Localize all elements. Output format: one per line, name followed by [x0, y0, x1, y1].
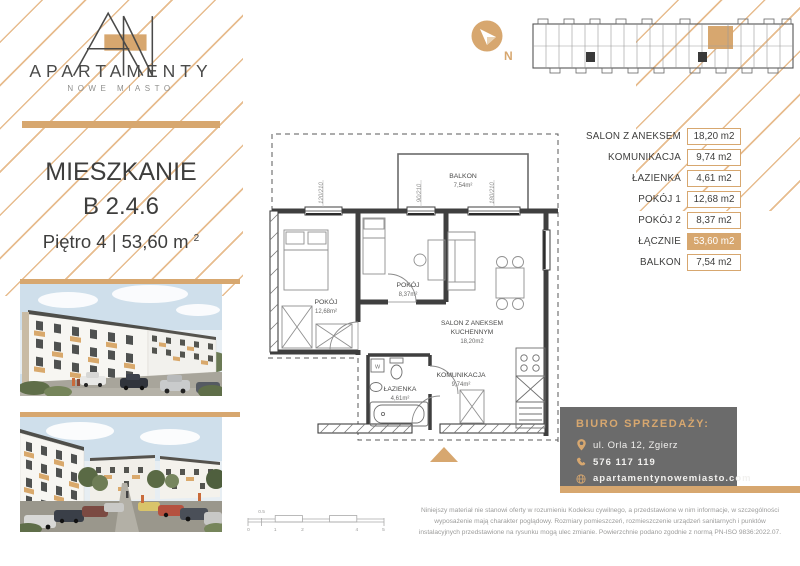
- key-plan-units: [533, 24, 793, 68]
- sales-office-box: BIURO SPRZEDAŻY: ul. Orla 12, Zgierz 576…: [560, 407, 737, 486]
- balkon-label: BALKON: [449, 173, 477, 180]
- office-website-row: apartamentynowemiasto.com: [576, 473, 737, 484]
- pokoj1-furniture: [282, 230, 352, 348]
- salon-furniture: [448, 232, 524, 423]
- listing-title-block: MIESZKANIE B 2.4.6 Piętro 4 | 53,60 m 2: [8, 158, 234, 253]
- row-value: 7,54 m2: [687, 254, 741, 271]
- row-label: SALON Z ANEKSEM: [558, 131, 687, 142]
- table-row: KOMUNIKACJA 9,74 m2: [558, 149, 741, 166]
- komunikacja-label: KOMUNIKACJA: [436, 372, 486, 379]
- window-dim-3: 180/210: [490, 182, 496, 204]
- table-row: POKÓJ 2 8,37 m2: [558, 212, 741, 229]
- listing-type: MIESZKANIE: [8, 158, 234, 187]
- listing-area-sup: 2: [194, 233, 200, 244]
- office-phone-row: 576 117 119: [576, 457, 737, 468]
- office-bottom-bar: [560, 486, 800, 493]
- lazienka-label: ŁAZIENKA: [384, 386, 417, 393]
- disclaimer-line-2: wyposażenie mają charakter poglądowy. Ro…: [412, 516, 788, 527]
- row-value: 8,37 m2: [687, 212, 741, 229]
- kitchen-fixtures: [516, 348, 545, 428]
- row-label: ŁĄCZNIE: [558, 236, 687, 247]
- row-label: POKÓJ 1: [558, 194, 687, 205]
- pokoj1-area: 12,68m²: [315, 309, 337, 315]
- table-row: BALKON 7,54 m2: [558, 254, 741, 271]
- building-render-photo-2: [20, 417, 222, 532]
- table-row: SALON Z ANEKSEM 18,20 m2: [558, 128, 741, 145]
- listing-floor-text: Piętro 4 | 53,60 m: [43, 231, 189, 252]
- office-address: ul. Orla 12, Zgierz: [593, 440, 678, 451]
- row-value: 12,68 m2: [687, 191, 741, 208]
- row-label: KOMUNIKACJA: [558, 152, 687, 163]
- brand-subtitle: NOWE MIASTO: [18, 84, 224, 93]
- row-label: POKÓJ 2: [558, 215, 687, 226]
- scale-label-2: 2: [301, 527, 304, 533]
- pokoj2-label: POKÓJ: [396, 280, 419, 289]
- window-dim-2: 90/210: [417, 183, 423, 202]
- row-value: 9,74 m2: [687, 149, 741, 166]
- listing-floor-area: Piętro 4 | 53,60 m 2: [8, 231, 234, 253]
- compass-icon: N: [468, 16, 520, 64]
- listing-unit: B 2.4.6: [8, 193, 234, 221]
- scale-label-4: 4: [355, 527, 358, 533]
- row-label: ŁAZIENKA: [558, 173, 687, 184]
- compass-north-label: N: [504, 49, 513, 63]
- table-row-total: ŁĄCZNIE 53,60 m2: [558, 233, 741, 250]
- row-value-total: 53,60 m2: [687, 233, 741, 250]
- lazienka-area: 4,61m²: [391, 396, 410, 402]
- phone-icon: [576, 457, 586, 467]
- sales-office-title: BIURO SPRZEDAŻY:: [576, 418, 737, 430]
- disclaimer-line-1: Niniejszy materiał nie stanowi oferty w …: [412, 505, 788, 516]
- logo-divider-bar: [22, 121, 220, 128]
- apartment-floor-plan: BALKON 7,54m²: [262, 118, 564, 464]
- scale-label-5: 5: [382, 527, 385, 533]
- scale-bar: 0 0.5 1 2 4 5: [246, 506, 388, 536]
- office-website: apartamentynowemiasto.com: [593, 473, 752, 484]
- window-dim-1: 120/210: [319, 182, 325, 204]
- table-row: POKÓJ 1 12,68 m2: [558, 191, 741, 208]
- globe-icon: [576, 474, 586, 484]
- flyer-page: APARTAMENTY NOWE MIASTO MIESZKANIE B 2.4…: [0, 0, 800, 566]
- salon-label-2: KUCHENNYM: [451, 329, 494, 336]
- entrance-triangle-marker: [430, 447, 458, 462]
- salon-area: 18,20m2: [460, 339, 484, 345]
- pokoj1-label: POKÓJ: [314, 297, 337, 306]
- komunikacja-area: 9,74m²: [452, 382, 471, 388]
- office-phone: 576 117 119: [593, 457, 656, 468]
- scale-label-0: 0: [247, 527, 250, 533]
- table-row: ŁAZIENKA 4,61 m2: [558, 170, 741, 187]
- windows: [305, 180, 550, 270]
- salon-label-1: SALON Z ANEKSEM: [441, 320, 503, 327]
- office-address-row: ul. Orla 12, Zgierz: [576, 439, 737, 451]
- legal-disclaimer: Niniejszy materiał nie stanowi oferty w …: [412, 505, 788, 539]
- brand-name: APARTAMENTY: [18, 61, 224, 82]
- area-table: SALON Z ANEKSEM 18,20 m2 KOMUNIKACJA 9,7…: [558, 128, 741, 271]
- pokoj2-area: 8,37m²: [399, 292, 418, 298]
- building-render-photo-1: [20, 284, 222, 396]
- building-key-plan: [530, 16, 796, 76]
- key-plan-highlighted-unit: [708, 26, 733, 49]
- location-pin-icon: [576, 439, 586, 451]
- washer-label: W: [375, 365, 381, 371]
- pokoj2-furniture: [363, 218, 445, 280]
- row-value: 4,61 m2: [687, 170, 741, 187]
- scale-label-05: 0.5: [258, 509, 265, 515]
- party-wall-left: [270, 211, 278, 352]
- scale-label-1: 1: [274, 527, 277, 533]
- row-label: BALKON: [558, 257, 687, 268]
- disclaimer-line-3: instalacyjnych przedstawione na rysunku …: [412, 527, 788, 538]
- balkon-area: 7,54m²: [454, 183, 473, 189]
- row-value: 18,20 m2: [687, 128, 741, 145]
